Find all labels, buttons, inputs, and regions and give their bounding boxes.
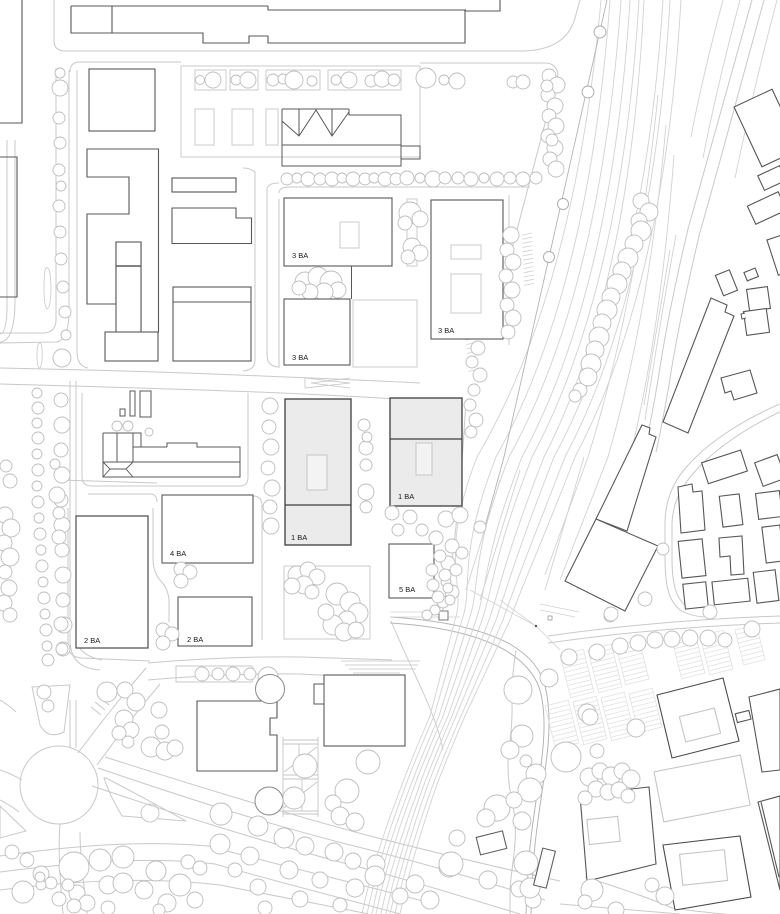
svg-text:4 BA: 4 BA — [170, 549, 186, 558]
svg-text:2 BA: 2 BA — [187, 635, 203, 644]
svg-text:1 BA: 1 BA — [398, 492, 414, 501]
svg-text:5 BA: 5 BA — [399, 585, 415, 594]
svg-text:3 BA: 3 BA — [438, 326, 454, 335]
svg-text:2 BA: 2 BA — [84, 636, 100, 645]
svg-text:3 BA: 3 BA — [292, 251, 308, 260]
svg-text:1 BA: 1 BA — [291, 533, 307, 542]
svg-text:3 BA: 3 BA — [292, 353, 308, 362]
